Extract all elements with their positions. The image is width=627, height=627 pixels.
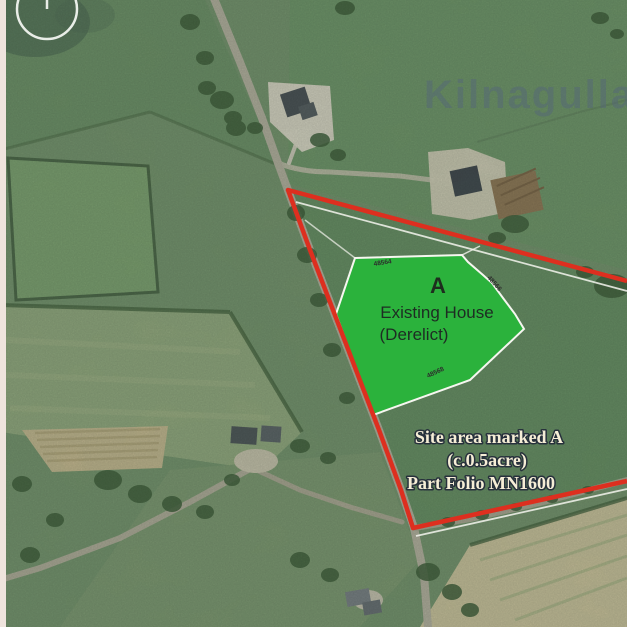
site-caption-line2: (Derelict)	[380, 325, 449, 344]
map-canvas: 48564 48566 48568 A Existing House (Dere…	[0, 0, 627, 627]
scan-edge-strip	[0, 0, 6, 627]
note-line3: Part Folio MN1600	[407, 473, 555, 493]
townland-watermark: Kilnagulla	[424, 73, 627, 117]
aerial-site-map: 48564 48566 48568 A Existing House (Dere…	[0, 0, 627, 627]
site-caption-line1: Existing House	[380, 303, 493, 322]
site-area-label: A	[430, 273, 446, 298]
note-line1: Site area marked A	[415, 427, 563, 447]
note-line2: (c.0.5acre)	[447, 450, 527, 471]
